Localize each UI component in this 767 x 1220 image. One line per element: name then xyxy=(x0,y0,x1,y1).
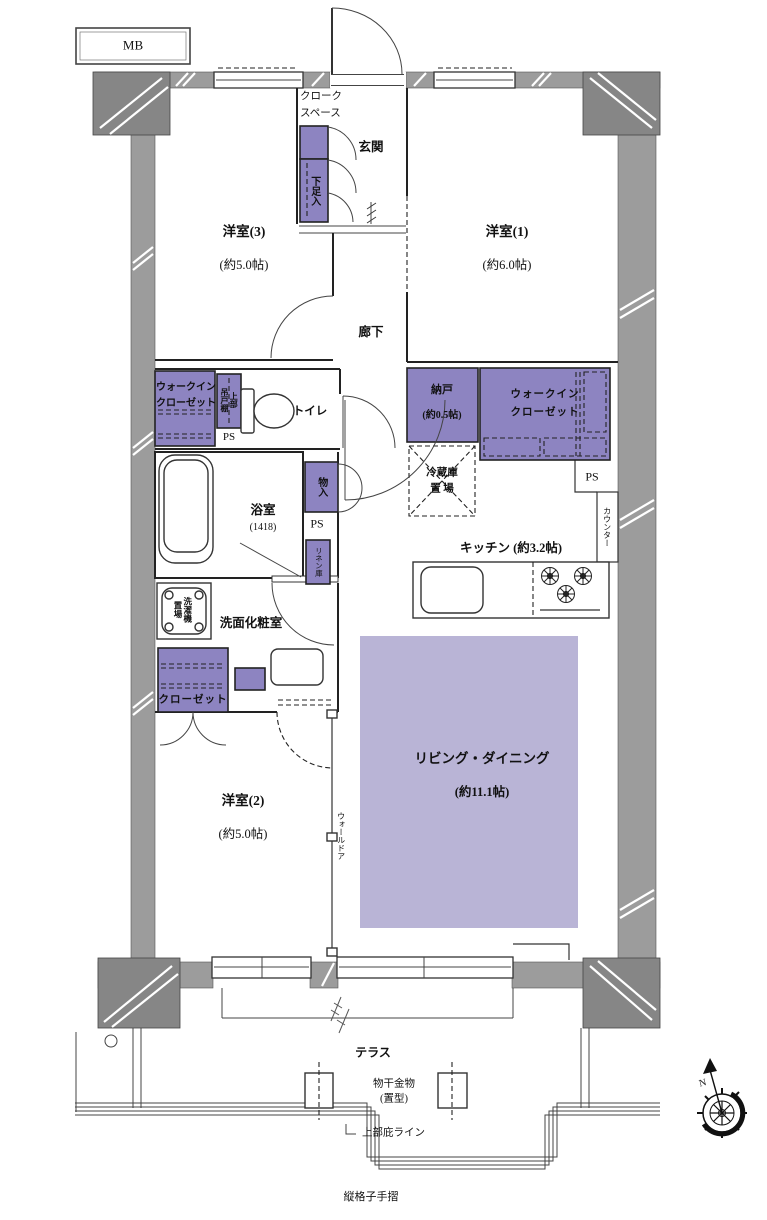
room-western3-name: 洋室(3) xyxy=(223,222,266,242)
room-western1-area: (約6.0帖) xyxy=(483,256,532,274)
ps-label-2: PS xyxy=(585,468,598,485)
counter-label: カウンター xyxy=(602,507,611,547)
washroom-label: 洗面化粧室 xyxy=(220,614,283,632)
floor-plan: MB 洋室(3) (約5.0帖) 洋室(1) (約6.0帖) クローク スペース… xyxy=(0,0,767,1220)
laundry-hardware-label: 物干金物 (置型) xyxy=(373,1077,415,1106)
hall-label: 廊下 xyxy=(358,323,383,341)
wic-left-label: ウォークイン クローゼット xyxy=(156,380,216,412)
entrance-door xyxy=(330,8,406,88)
living-dining-name: リビング・ダイニング xyxy=(415,749,550,769)
mb-label: MB xyxy=(123,37,143,56)
wic-right-label: ウォークイン クローゼット xyxy=(511,386,580,422)
compass-icon xyxy=(697,1058,747,1138)
living-dining-area: (約11.1帖) xyxy=(455,783,510,801)
bath-name: 浴室 xyxy=(250,501,275,519)
room-western2-area: (約5.0帖) xyxy=(219,825,268,843)
eaves-line-bracket xyxy=(346,1124,356,1134)
toilet-fixture xyxy=(241,389,294,433)
closet-label: クローゼット xyxy=(159,692,228,707)
toilet-label: トイレ xyxy=(293,404,328,421)
shoe-cupboard-label: 下足入 xyxy=(308,176,320,206)
kitchen-label: キッチン (約3.2帖) xyxy=(460,539,562,557)
upper-shelf-label: 上部 吊戸棚 xyxy=(220,388,238,412)
storage-room-area: (約0.5帖) xyxy=(422,409,461,424)
fridge-space-label: 冷蔵庫 置 場 xyxy=(426,465,458,497)
bathtub xyxy=(159,455,213,563)
cloak-space-label: クローク スペース xyxy=(300,89,342,123)
kitchen-counter xyxy=(413,562,609,618)
terrace-label: テラス xyxy=(355,1044,391,1061)
linen-label: リネン庫 xyxy=(314,547,323,577)
storage-in-label: 物入 xyxy=(315,477,327,497)
wall-door-label: ウォールドア xyxy=(336,812,345,860)
entrance-label: 玄関 xyxy=(358,138,383,156)
ps-label-1: PS xyxy=(223,430,235,446)
room-western2-name: 洋室(2) xyxy=(222,791,265,811)
floorplan-drawing xyxy=(0,0,767,1220)
ps-label-3: PS xyxy=(310,515,323,532)
entrance-step-mark xyxy=(367,202,376,224)
eaves-line-label: 上部庇ライン xyxy=(362,1125,425,1140)
handrail-label: 縦格子手摺 xyxy=(344,1190,399,1206)
bath-size: (1418) xyxy=(250,521,277,536)
storage-room-name: 納戸 xyxy=(431,383,453,399)
room-western1-name: 洋室(1) xyxy=(486,222,529,242)
washer-space-label: 洗濯機 置場 xyxy=(172,597,192,623)
room-western3-area: (約5.0帖) xyxy=(220,256,269,274)
washbasin xyxy=(271,649,323,685)
break-mark xyxy=(331,997,349,1033)
